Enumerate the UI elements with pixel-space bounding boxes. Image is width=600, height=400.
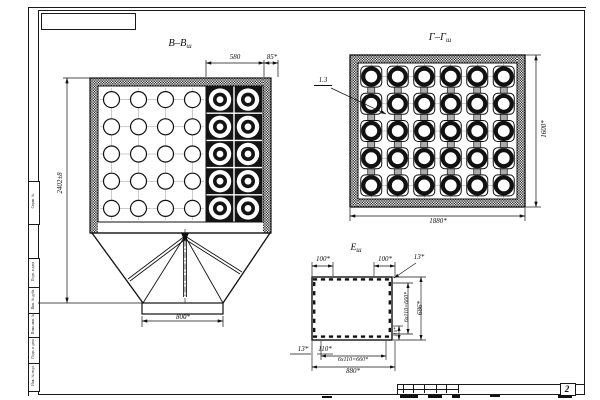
- ve-leader-13-top: 13*: [410, 254, 428, 261]
- vb-plain-tube: [104, 119, 120, 135]
- ve-dim-100-left: 100*: [310, 256, 336, 263]
- vb-plain-tube: [185, 119, 201, 135]
- cutoff-text-mark: [322, 396, 332, 398]
- vb-plain-tube: [158, 146, 174, 162]
- vb-plain-tube: [104, 200, 120, 216]
- vg-tube-connector: [500, 141, 507, 148]
- vg-tube-connector: [500, 87, 507, 94]
- title-block-col: [458, 385, 459, 393]
- vg-tube-connector: [474, 168, 481, 175]
- vg-tube-connector: [447, 87, 454, 94]
- cutoff-text-mark: [490, 395, 500, 397]
- ve-dim-right-total: 686*: [417, 292, 424, 324]
- vg-tube-connector: [368, 114, 375, 121]
- vg-tube-connector: [394, 168, 401, 175]
- title-block-divider: [398, 389, 458, 390]
- view-b-title-sub: ш: [186, 42, 191, 50]
- drawing-sheet: Справ. №Подп. и датаИнв. № дубл.Взам. ин…: [0, 0, 600, 400]
- view-b-title: В–Вш: [150, 38, 210, 50]
- ve-dim-110-right: 110*: [394, 324, 399, 340]
- vb-plain-tube: [185, 146, 201, 162]
- vb-plain-tube: [158, 119, 174, 135]
- vb-plain-tube: [131, 119, 147, 135]
- title-block-col: [436, 385, 437, 393]
- cutoff-text-mark: [558, 395, 572, 398]
- ve-leader-110-bottom: 110*: [316, 346, 334, 353]
- vb-dim-85: 85*: [258, 54, 286, 61]
- ve-stud-ticks: [313, 278, 391, 338]
- cutoff-text-mark: [452, 395, 460, 398]
- title-block-col: [403, 385, 404, 393]
- vb-plain-tube: [104, 173, 120, 189]
- vg-tube-connector: [474, 114, 481, 121]
- view-b-title-main: В–В: [168, 38, 186, 49]
- vg-tube-connector: [447, 114, 454, 121]
- vb-plain-tube: [131, 146, 147, 162]
- vb-plain-tube-grid: [100, 88, 204, 220]
- vb-dim-outlet: 800*: [163, 314, 203, 321]
- vg-tube-grid: [359, 64, 516, 198]
- vg-tube-connector: [394, 87, 401, 94]
- vb-plain-tube: [185, 200, 201, 216]
- vg-tube-connector: [474, 87, 481, 94]
- view-e-title-sub: ш: [356, 246, 361, 254]
- vg-tube-connector: [421, 141, 428, 148]
- vg-dim-height: 1600*: [541, 108, 548, 150]
- vb-plain-tube: [131, 92, 147, 108]
- ve-outline: [312, 277, 392, 340]
- ve-dim-100-right: 100*: [372, 256, 398, 263]
- vg-tube-connector: [447, 141, 454, 148]
- view-g-title-sub: ш: [446, 36, 451, 44]
- vb-plain-tube: [158, 200, 174, 216]
- vb-plain-tube: [185, 92, 201, 108]
- cutoff-text-mark: [400, 395, 418, 398]
- vb-plain-tube: [185, 173, 201, 189]
- vg-tube-connector: [394, 141, 401, 148]
- vg-tube-connector: [421, 168, 428, 175]
- vg-tube-connector: [421, 87, 428, 94]
- vg-tube-connector: [447, 168, 454, 175]
- view-g-title-main: Г–Г: [429, 32, 446, 43]
- vg-tube-connector: [500, 168, 507, 175]
- vb-dim-580: 580: [215, 54, 255, 61]
- vg-tube-connector: [421, 114, 428, 121]
- view-g-title: Г–Гш: [418, 32, 462, 44]
- vb-plain-tube: [104, 92, 120, 108]
- drawing-linework: [0, 0, 600, 400]
- vg-dim-width: 1880*: [418, 218, 458, 225]
- vb-plain-tube: [131, 173, 147, 189]
- view-e-title: Еш: [344, 243, 368, 254]
- vb-dim-height: 2402±8: [57, 158, 64, 208]
- cutoff-text-mark: [428, 395, 442, 398]
- title-block-col: [424, 385, 425, 393]
- vb-plain-tube: [104, 146, 120, 162]
- vg-tube-connector: [500, 114, 507, 121]
- vg-tube-connector: [368, 87, 375, 94]
- vb-plain-tube: [158, 92, 174, 108]
- vg-tube-connector: [368, 168, 375, 175]
- vb-hopper: [38, 229, 270, 320]
- vg-tube-connector: [394, 114, 401, 121]
- vg-tube-connector: [474, 141, 481, 148]
- ve-leader-13-bottom: 13*: [296, 346, 310, 353]
- vb-plain-tube: [158, 173, 174, 189]
- ve-dim-right-pitch: 6х110=660*: [404, 281, 410, 333]
- vg-callout-1-3: 1.3: [314, 77, 332, 86]
- sheet-number: 2: [560, 384, 574, 394]
- ve-dim-bottom-pitch: 6х110=660*: [330, 357, 376, 363]
- vg-tube-connector: [368, 141, 375, 148]
- ve-dim-bottom-total: 880*: [335, 368, 371, 375]
- vb-finned-tube-bank: [206, 86, 262, 222]
- title-block-col: [446, 385, 447, 393]
- title-block-col: [413, 385, 414, 393]
- vb-plain-tube: [131, 200, 147, 216]
